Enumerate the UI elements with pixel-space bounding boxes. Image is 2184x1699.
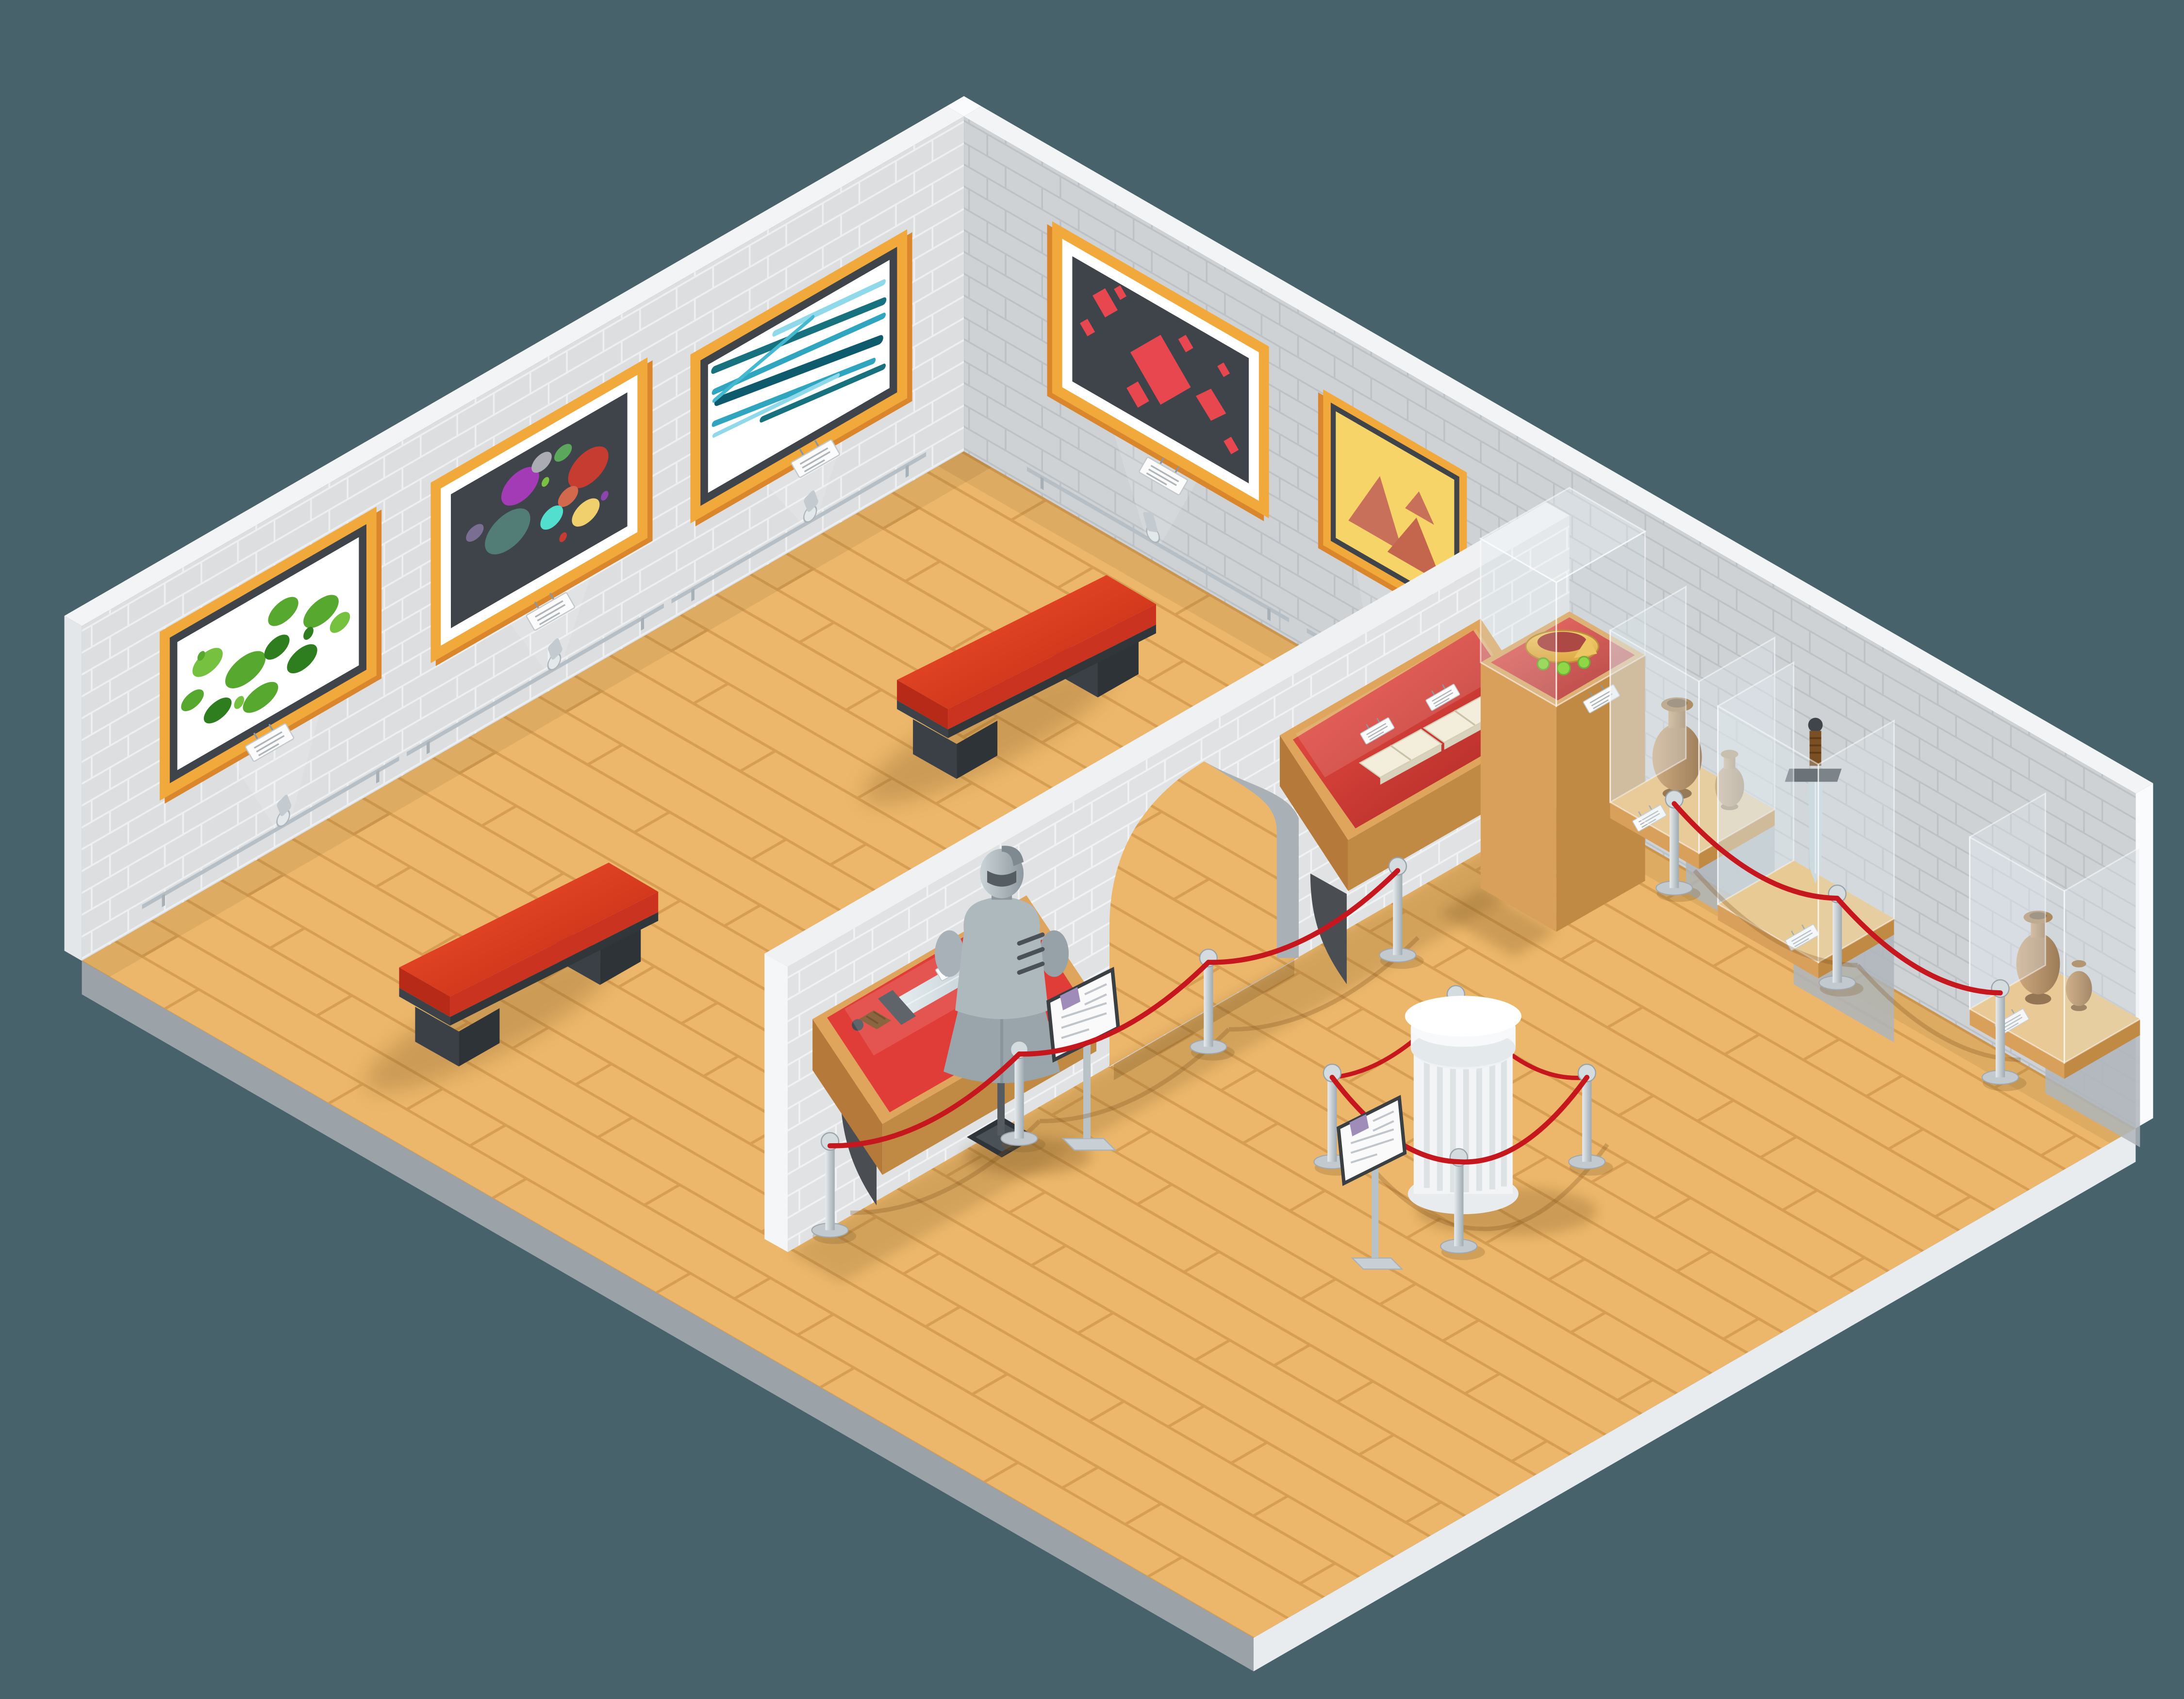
column-flutes [1427, 1055, 1504, 1192]
pedestal-front-left [1481, 663, 1556, 932]
museum-illustration: Isometric museum interior illustration —… [0, 0, 2184, 1699]
wall-nw-end-cap [65, 616, 82, 961]
divider-end-cap [764, 953, 788, 1252]
armor-arm-left [935, 930, 964, 977]
armor-arm-right [1040, 930, 1069, 977]
column-cap [1405, 996, 1522, 1036]
armor-torso [955, 897, 1048, 1019]
